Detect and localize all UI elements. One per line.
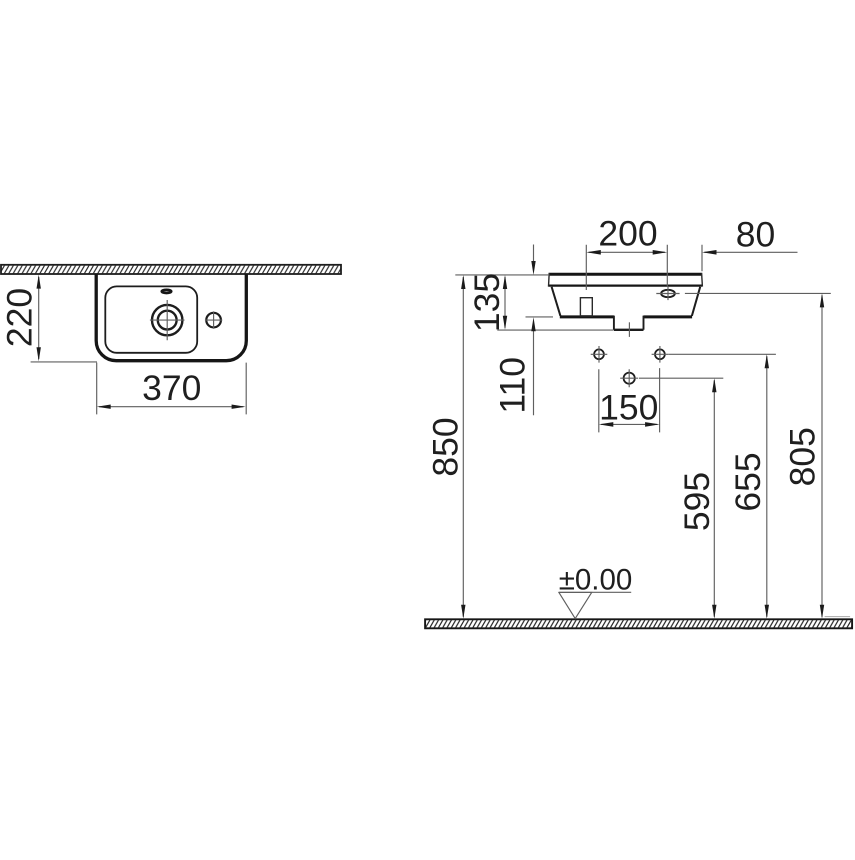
svg-text:110: 110 bbox=[492, 357, 532, 414]
svg-text:135: 135 bbox=[467, 273, 507, 332]
svg-text:805: 805 bbox=[782, 427, 822, 486]
svg-text:220: 220 bbox=[0, 288, 39, 347]
svg-text:370: 370 bbox=[142, 368, 201, 408]
svg-text:850: 850 bbox=[426, 417, 466, 476]
svg-text:150: 150 bbox=[599, 388, 658, 428]
svg-text:655: 655 bbox=[728, 452, 768, 511]
svg-text:595: 595 bbox=[677, 472, 717, 531]
svg-text:±0.00: ±0.00 bbox=[559, 564, 633, 597]
svg-text:80: 80 bbox=[736, 215, 776, 255]
svg-text:200: 200 bbox=[598, 214, 657, 254]
